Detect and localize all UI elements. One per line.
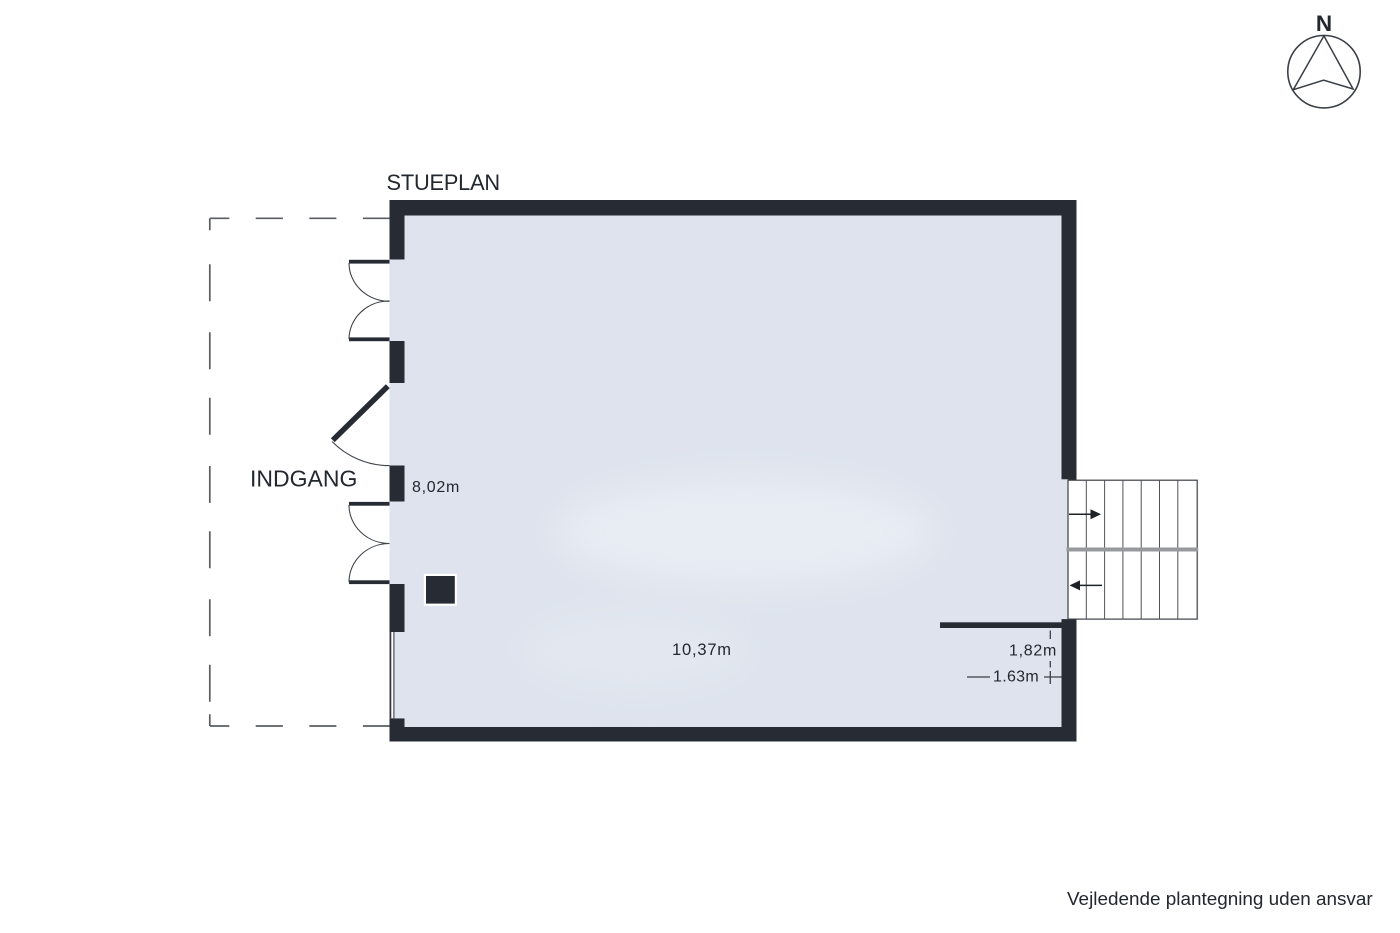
svg-text:INDGANG: INDGANG: [250, 465, 357, 491]
svg-text:1.63m: 1.63m: [993, 669, 1039, 686]
svg-text:N: N: [1316, 11, 1332, 36]
svg-text:Vejledende plantegning uden an: Vejledende plantegning uden ansvar: [1067, 889, 1373, 910]
svg-text:1,82m: 1,82m: [1009, 642, 1057, 659]
svg-text:8,02m: 8,02m: [412, 479, 460, 496]
svg-text:10,37m: 10,37m: [672, 641, 732, 659]
svg-text:STUEPLAN: STUEPLAN: [387, 170, 500, 195]
